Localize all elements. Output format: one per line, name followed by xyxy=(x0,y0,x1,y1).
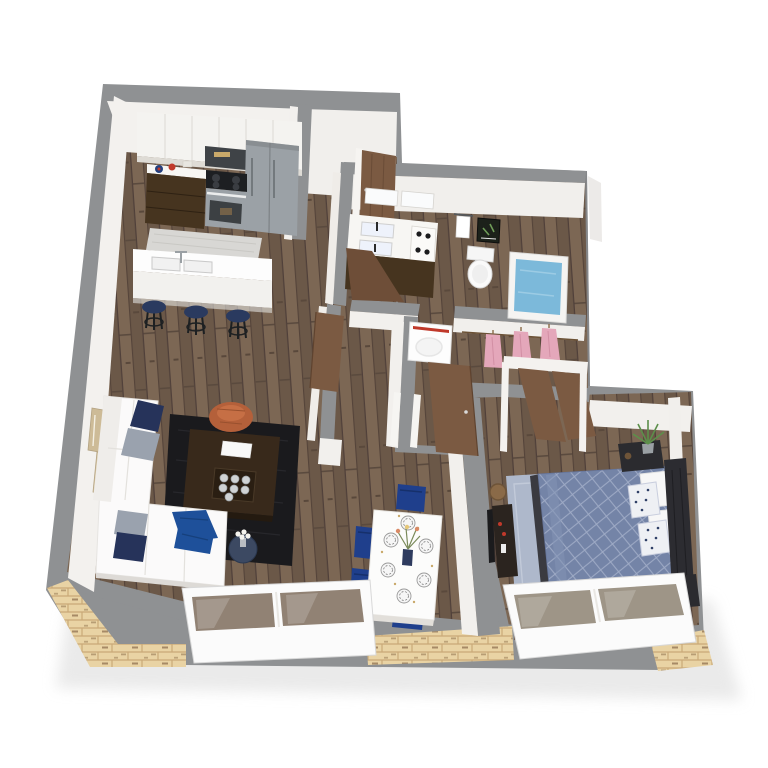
washer-door xyxy=(416,338,442,356)
laundry-nook xyxy=(408,322,452,364)
coffee-table xyxy=(182,429,280,522)
vanity-shelves xyxy=(410,226,436,264)
toilet xyxy=(467,246,494,288)
coffee-table-book xyxy=(221,441,252,458)
nightstand-jar xyxy=(625,453,632,460)
towel xyxy=(456,216,470,238)
tub-water xyxy=(514,259,562,315)
floor-plan-canvas: 3D isometric apartment floor plan render… xyxy=(0,0,768,768)
closet-jamb xyxy=(579,368,587,452)
basket xyxy=(490,484,506,500)
entry-hall xyxy=(352,148,396,224)
hall-west-wall-endcap xyxy=(318,438,342,466)
pillow-gray xyxy=(121,428,160,461)
oven-glow xyxy=(220,208,232,215)
pouf xyxy=(209,402,253,432)
bed-pillow-dotted xyxy=(638,520,670,556)
bathroom-wall-art xyxy=(477,218,500,243)
floor-plan-rendering: 3D isometric apartment floor plan render… xyxy=(0,0,768,768)
entry-door xyxy=(360,150,396,224)
dining-chair xyxy=(396,484,426,512)
plant-pot xyxy=(642,443,654,454)
bathtub xyxy=(508,252,568,323)
living-room xyxy=(88,396,300,591)
door-knob xyxy=(464,410,468,414)
pillow-navy xyxy=(113,532,147,562)
microwave xyxy=(205,146,246,170)
microwave-display xyxy=(214,152,230,157)
lower-cabinets xyxy=(145,173,206,229)
double-vanity xyxy=(345,214,438,302)
wall-right-exterior-face xyxy=(588,176,602,242)
bed-pillow-dotted xyxy=(628,482,660,518)
toilet-seat xyxy=(472,265,488,284)
living-window xyxy=(182,580,376,663)
